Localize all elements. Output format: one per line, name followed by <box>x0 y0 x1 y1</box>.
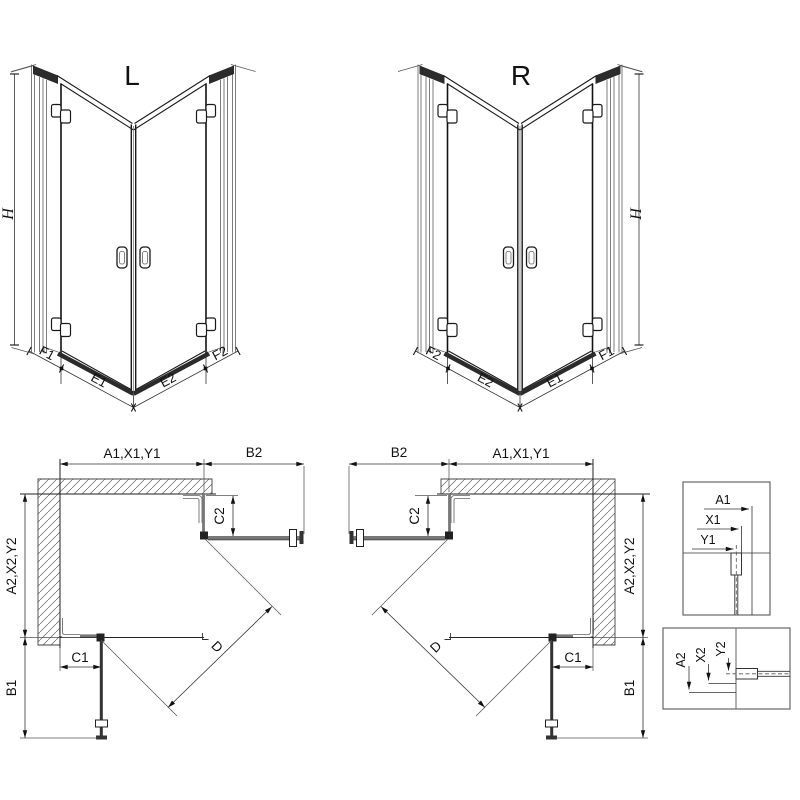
door-pivot-side <box>549 634 557 642</box>
dim-f2-left: F2 <box>210 343 230 363</box>
detail-x2-label: X2 <box>694 647 708 662</box>
dim-b1-left: B1 <box>4 680 19 697</box>
dim-f1-right: F1 <box>596 343 616 363</box>
dim-depth-left: A2,X2,Y2 <box>4 537 19 594</box>
door-handle-side <box>96 720 108 727</box>
shower-enclosure-technical-drawing: L H F1 E1 E2 F2 R H F2 E2 E1 F1 <box>0 0 800 800</box>
dim-c2-left: C2 <box>212 507 227 524</box>
front-view-right: R H F2 E2 E1 F1 <box>398 60 645 408</box>
wall-hatch-right <box>441 479 615 645</box>
detail-box-depth: A2 X2 Y2 <box>663 628 790 709</box>
dim-f2-right: F2 <box>423 343 443 363</box>
door-pivot-top <box>200 532 208 540</box>
dim-b2-left: B2 <box>246 445 263 460</box>
dim-height-right: H <box>628 207 645 221</box>
dim-width-top-right: A1,X1,Y1 <box>492 446 549 461</box>
dim-c1-right: C1 <box>564 650 581 665</box>
detail-x1-label: X1 <box>705 513 720 527</box>
detail-a2-label: A2 <box>674 652 688 667</box>
front-view-left: L H F1 E1 E2 F2 <box>0 60 256 408</box>
view-left-title: L <box>124 60 140 91</box>
dim-c2-right: C2 <box>407 507 422 524</box>
door-handle-side <box>546 720 558 727</box>
dim-depth-right: A2,X2,Y2 <box>622 537 637 594</box>
view-right-title: R <box>511 60 531 91</box>
dim-width-top-left: A1,X1,Y1 <box>103 446 160 461</box>
dim-b2-right: B2 <box>391 445 408 460</box>
dim-height-left: H <box>0 207 17 221</box>
door-pivot-side <box>97 634 105 642</box>
dim-b1-right: B1 <box>622 680 637 697</box>
door-pivot-top <box>445 532 453 540</box>
wall-hatch-left <box>38 479 212 645</box>
dim-c1-left: C1 <box>71 650 88 665</box>
door-handle-top <box>357 530 364 547</box>
dim-diagonal-right: D <box>427 638 445 656</box>
detail-y2-label: Y2 <box>714 641 728 656</box>
detail-a1-label: A1 <box>715 493 730 507</box>
detail-box-width: A1 X1 Y1 <box>683 482 770 615</box>
plan-view-left: A1,X1,Y1 B2 C2 A2,X2,Y2 C1 B1 D <box>4 445 304 740</box>
detail-y1-label: Y1 <box>700 533 715 547</box>
dim-f1-left: F1 <box>37 343 57 363</box>
plan-view-right: B2 A1,X1,Y1 C2 A2,X2,Y2 C1 B1 D <box>349 445 650 740</box>
door-handle-top <box>290 530 297 547</box>
drawing-svg: L H F1 E1 E2 F2 R H F2 E2 E1 F1 <box>0 0 800 800</box>
